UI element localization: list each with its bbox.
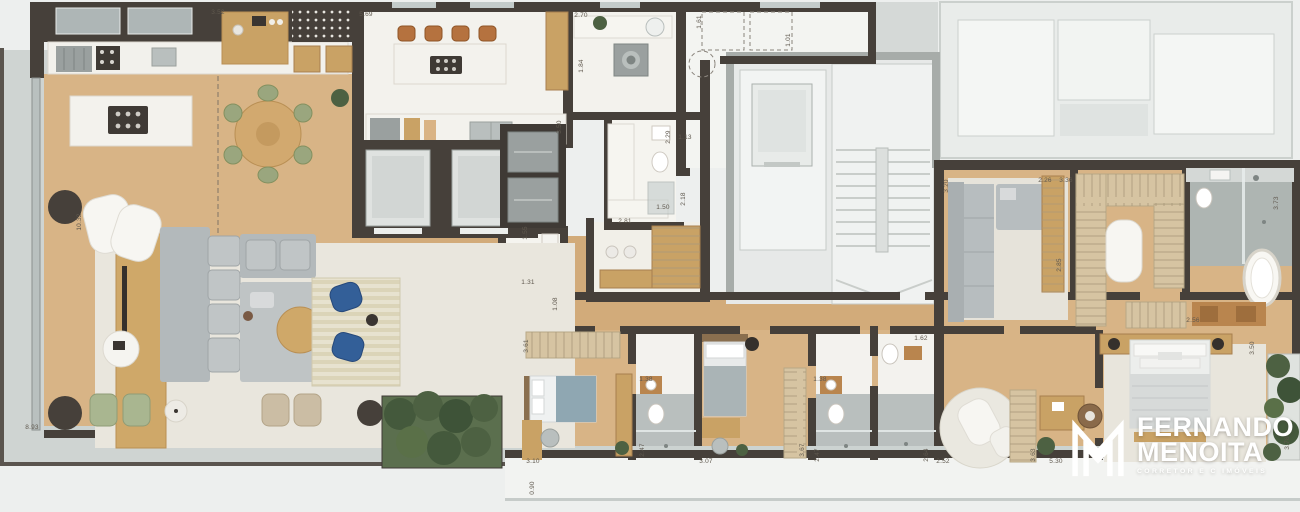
dimension-label: 2.47 [640, 443, 647, 456]
toilet-icon [828, 404, 844, 424]
sectional-sofa [160, 227, 316, 382]
potted-plant [1037, 437, 1055, 455]
dimension-label: 1.38 [813, 377, 826, 384]
dimension-label: 3.07 [699, 459, 712, 466]
potted-plant [331, 89, 349, 107]
dimension-label: 8.93 [25, 425, 38, 432]
brand-tagline: CORRETOR E C IMÓVEIS [1137, 468, 1294, 475]
brand-name-line2: MENOITA [1137, 440, 1294, 465]
dimension-label: 2.18 [681, 192, 688, 205]
dimension-label: 0.90 [530, 481, 537, 494]
dimension-label: 3.61 [524, 339, 531, 352]
wine-rack [326, 46, 352, 72]
appliance-icon [370, 118, 400, 142]
dimension-label: 1.55 [523, 226, 530, 239]
blanket [556, 376, 596, 422]
dimension-label: 2.29 [666, 130, 673, 143]
dimension-label: 2.56 [1186, 318, 1199, 325]
closet-daybed [1106, 220, 1142, 282]
dimension-label: 2.26 [1038, 178, 1051, 185]
dimension-label: 2.81 [618, 219, 631, 226]
appliance-tower [500, 124, 566, 228]
floor-plan-image: 3.525.692.701.611.0110.321.843.501.132.2… [0, 0, 1300, 512]
dimension-label: 1.38 [639, 377, 652, 384]
dimension-label: 1.61 [697, 15, 704, 28]
dimension-label: 3.50 [1250, 341, 1257, 354]
dimension-label: 1.08 [553, 297, 560, 310]
dimension-label: 2.70 [574, 13, 587, 20]
ceiling-fixture [745, 337, 759, 351]
toilet-icon [652, 152, 668, 172]
bath-counter [1186, 168, 1294, 182]
dimension-label: 2.52 [936, 459, 949, 466]
logo-monogram-icon [1070, 412, 1126, 478]
nightstand-lamp [1108, 338, 1120, 350]
desk-chair [712, 438, 728, 454]
dimension-label: 2.47 [815, 448, 822, 461]
dimension-label: 3.73 [1274, 196, 1281, 209]
dimension-label: 3.20 [944, 179, 951, 192]
common-stairs [832, 64, 934, 304]
laundry-sink [646, 18, 664, 36]
dimension-label: 5.69 [359, 12, 372, 19]
dimension-label: 1.31 [521, 280, 534, 287]
brand-logo: FERNANDO MENOITA CORRETOR E C IMÓVEIS [1070, 412, 1294, 478]
dimension-label: 3.63 [1031, 448, 1038, 461]
kitchen-sink [152, 48, 176, 66]
cooktop-icon [430, 56, 462, 74]
side-table [366, 314, 378, 326]
dimension-label: 1.84 [579, 59, 586, 72]
oven-icon [96, 46, 120, 70]
nightstand-lamp [1212, 338, 1224, 350]
dimension-label: 1.13 [678, 135, 691, 142]
dimension-label: 1.62 [914, 336, 927, 343]
potted-plant [615, 441, 629, 455]
dimension-label: 2.85 [1057, 258, 1064, 271]
kitchen-window [56, 8, 120, 34]
desk [702, 418, 740, 438]
dimension-label: 1.01 [786, 33, 793, 46]
desk [522, 420, 542, 460]
desk-chair [541, 429, 559, 447]
dimension-label: 10.32 [77, 213, 84, 230]
dimension-label: 3.67 [800, 443, 807, 456]
dimension-label: 3.52 [211, 10, 224, 17]
toilet-icon [1196, 188, 1212, 208]
planter [357, 400, 383, 426]
vanity [904, 346, 922, 360]
potted-plant [736, 444, 748, 456]
shower-glass [1242, 168, 1245, 264]
terrace-planter-plants [382, 391, 502, 468]
dimension-label: 3.36 [1059, 178, 1072, 185]
brand-name-line1: FERNANDO [1137, 415, 1294, 440]
kitchen-window [128, 8, 192, 34]
wine-rack [294, 46, 320, 72]
dimension-label: 5.30 [1049, 459, 1062, 466]
dimension-label: 1.50 [656, 205, 669, 212]
tall-cabinet [546, 12, 568, 90]
toilet-icon [882, 344, 898, 364]
dimension-label: 3.10 [526, 459, 539, 466]
cooktop-icon [108, 106, 148, 134]
tv-room-sofa [948, 182, 964, 322]
dimension-label: 3.50 [557, 120, 564, 133]
blanket [704, 366, 746, 416]
planter [48, 396, 82, 430]
dimension-label: 2.64 [924, 448, 931, 461]
toilet-icon [648, 404, 664, 424]
potted-plant [593, 16, 607, 30]
